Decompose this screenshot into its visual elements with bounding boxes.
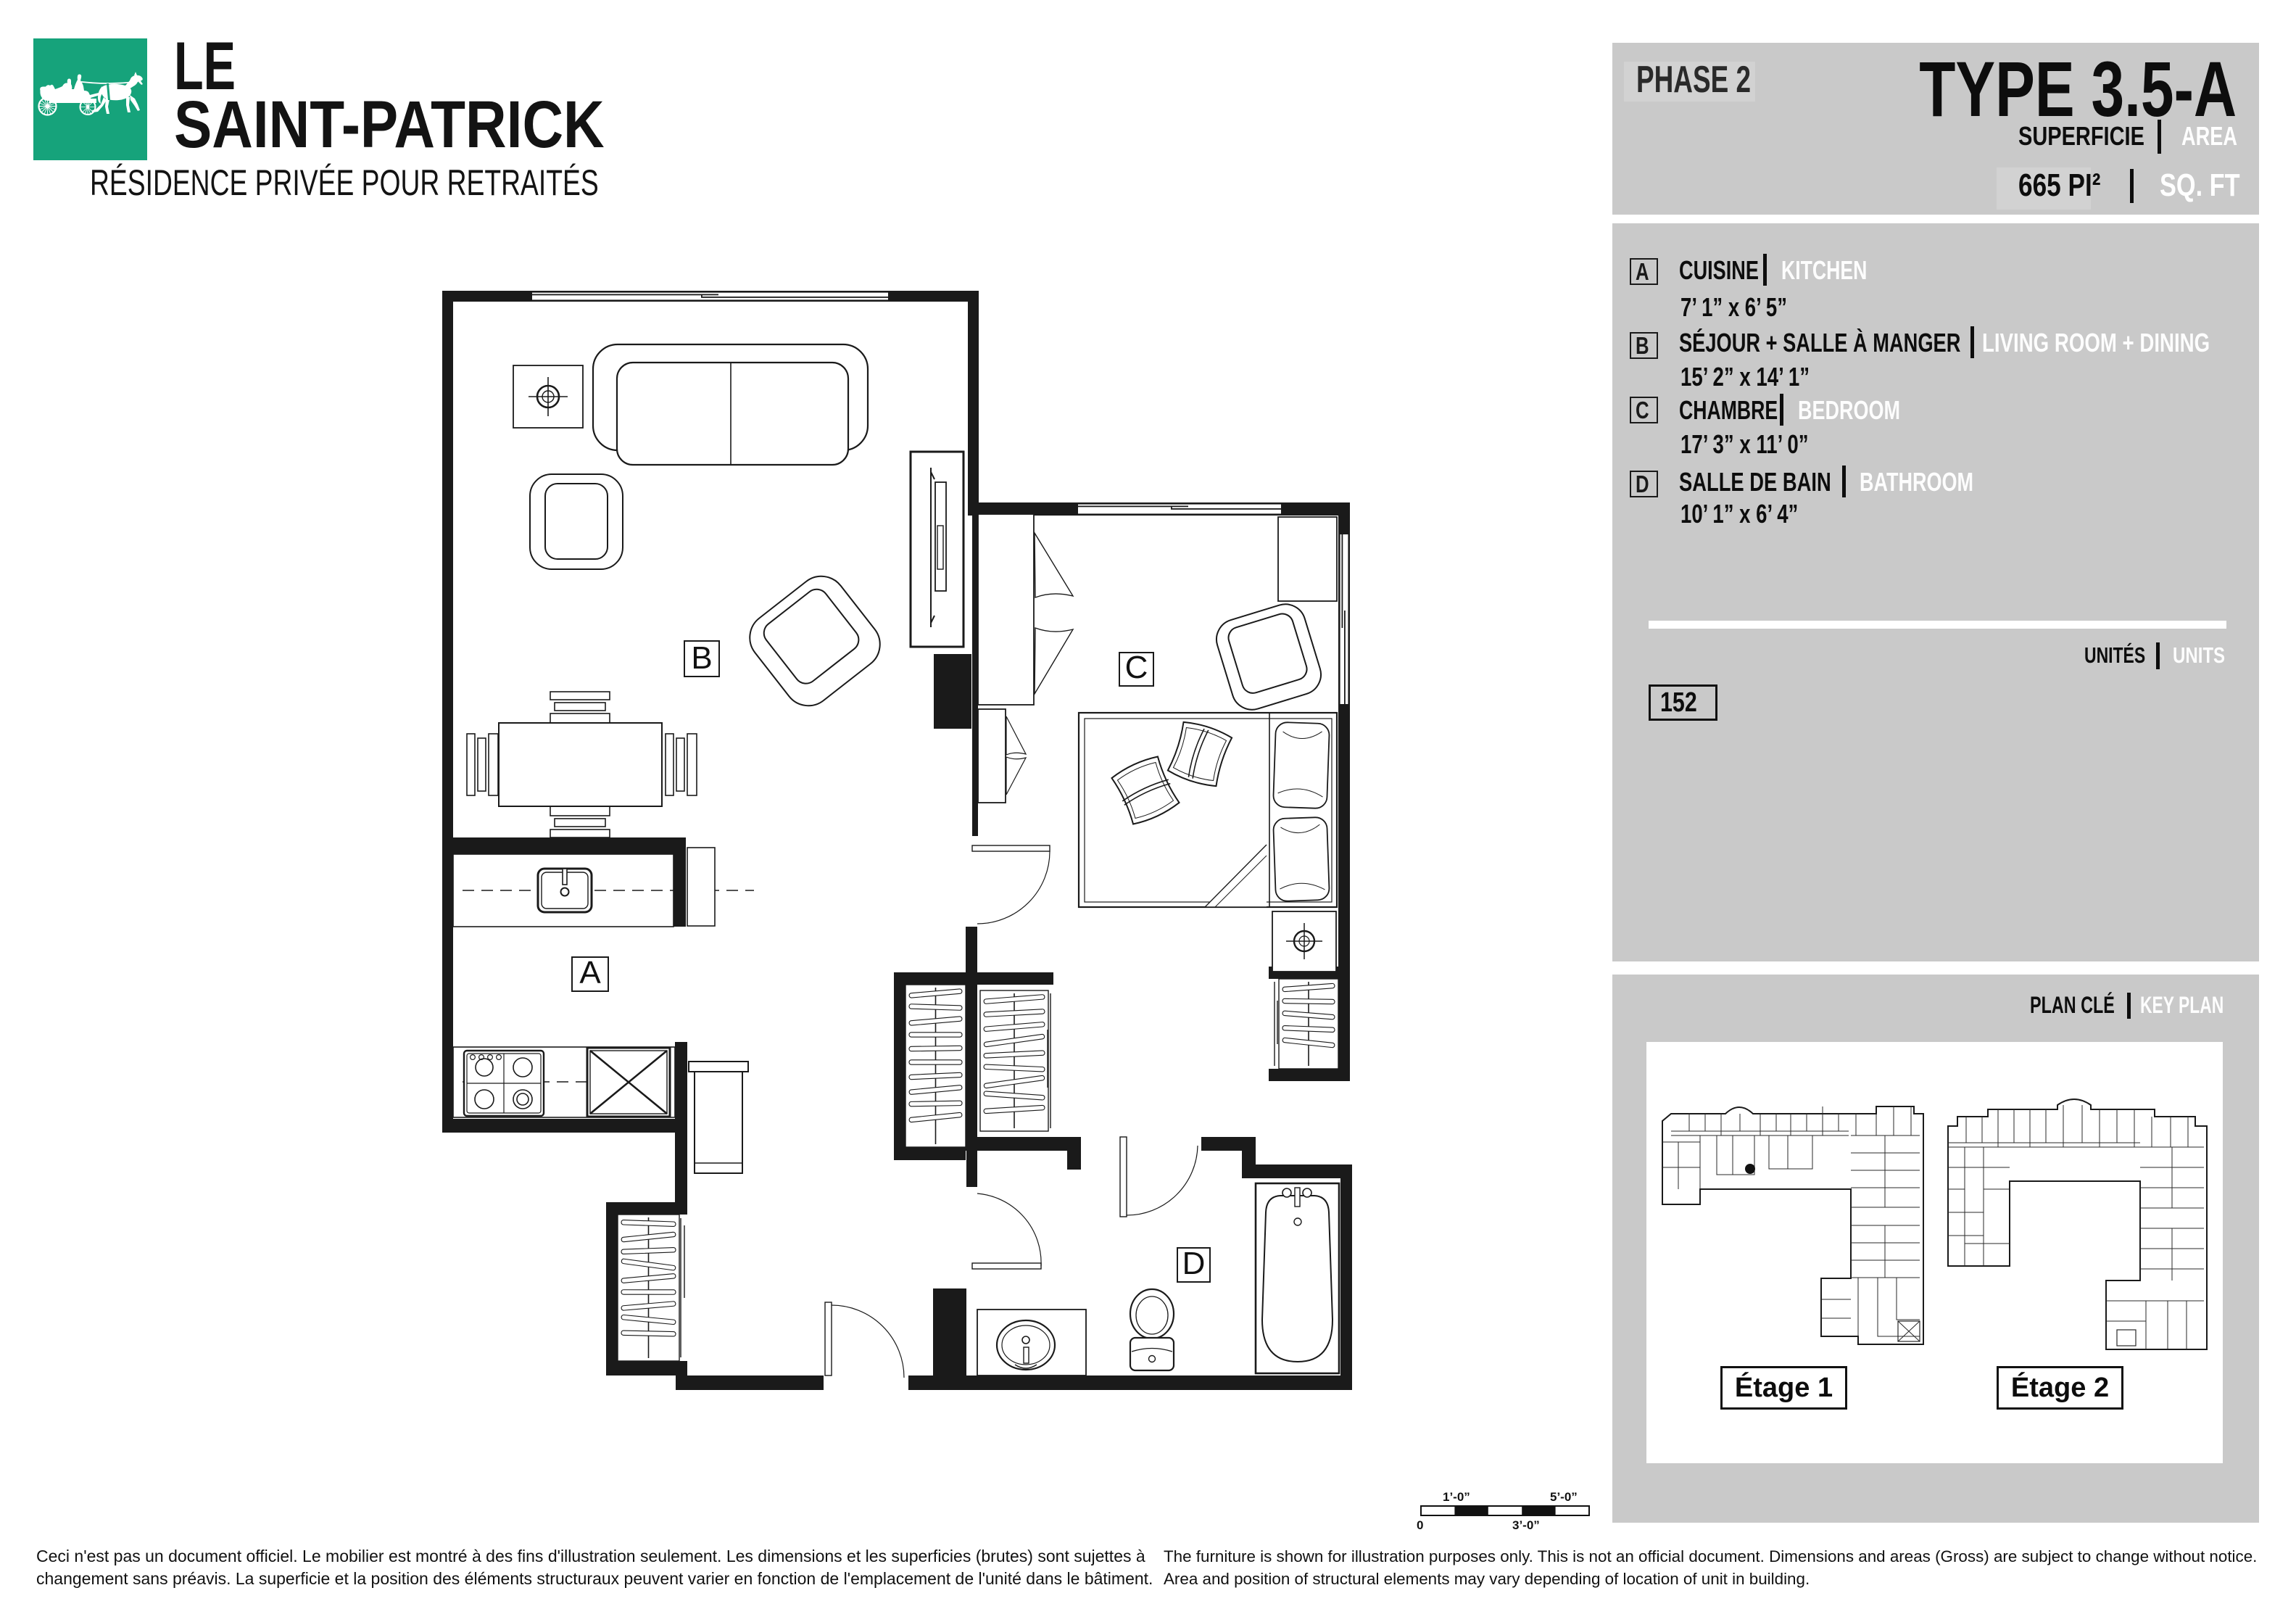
svg-text:D: D	[1182, 1246, 1206, 1281]
svg-text:3’-0”: 3’-0”	[1512, 1518, 1540, 1532]
svg-text:1’-0”: 1’-0”	[1443, 1490, 1470, 1504]
svg-text:C: C	[1125, 650, 1148, 685]
svg-text:A: A	[579, 955, 601, 990]
svg-text:5’-0”: 5’-0”	[1550, 1490, 1578, 1504]
svg-text:0: 0	[1417, 1518, 1423, 1532]
svg-text:B: B	[691, 640, 712, 676]
